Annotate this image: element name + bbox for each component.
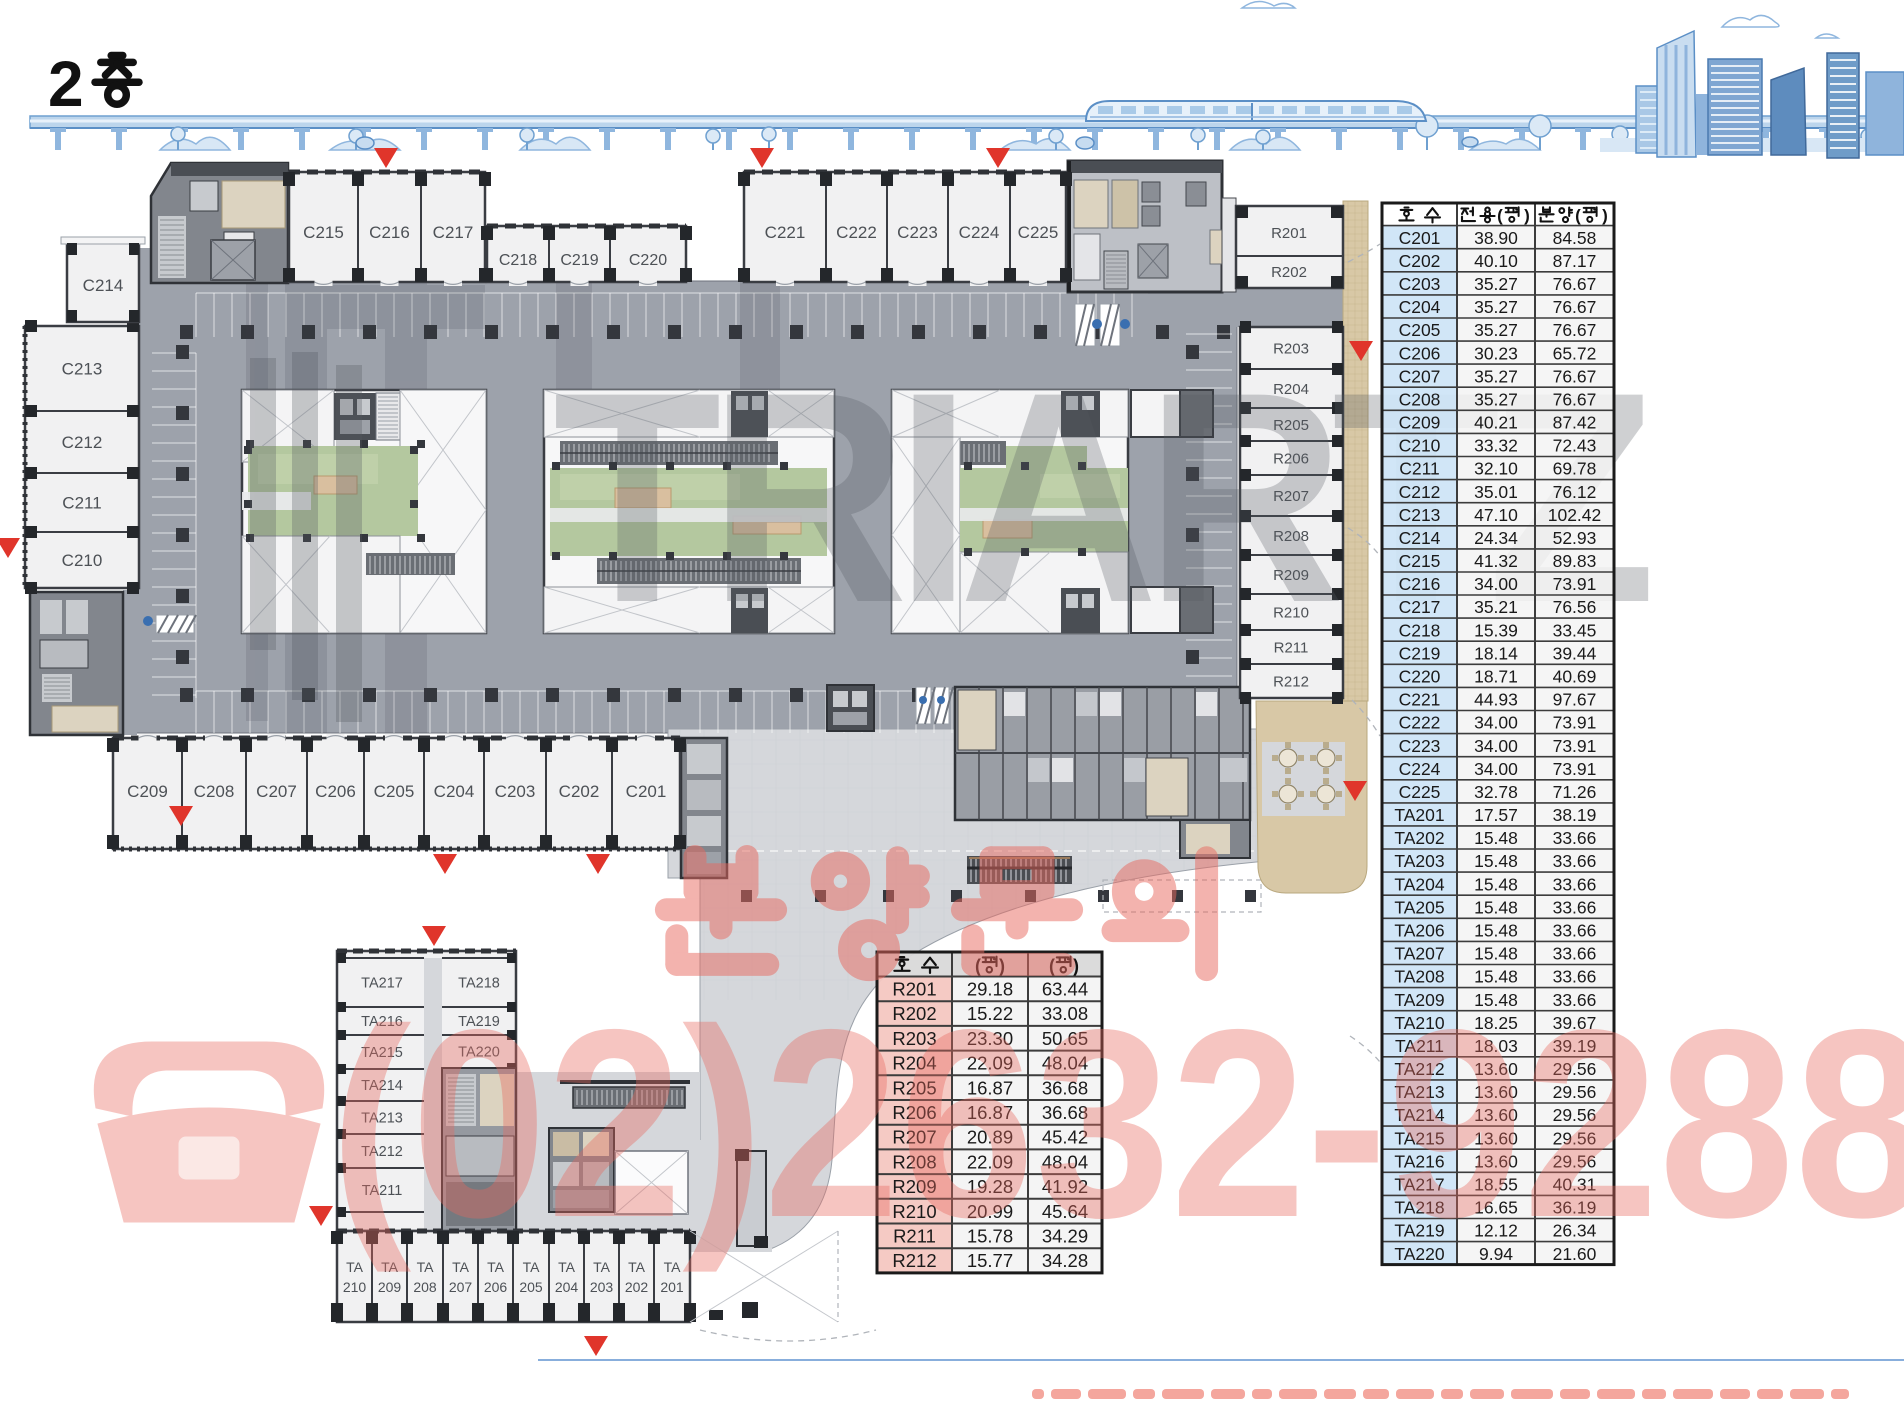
svg-text:30.23: 30.23	[1474, 343, 1518, 363]
svg-text:44.93: 44.93	[1474, 690, 1518, 710]
svg-text:C204: C204	[434, 782, 475, 801]
svg-text:C202: C202	[559, 782, 600, 801]
svg-text:35.27: 35.27	[1474, 366, 1518, 386]
svg-text:35.21: 35.21	[1474, 597, 1518, 617]
svg-text:76.12: 76.12	[1553, 482, 1597, 502]
svg-text:TA204: TA204	[1394, 874, 1445, 894]
svg-text:202: 202	[625, 1279, 649, 1295]
svg-text:C203: C203	[495, 782, 536, 801]
svg-text:34.00: 34.00	[1474, 736, 1518, 756]
svg-text:C213: C213	[1399, 505, 1441, 525]
svg-text:204: 204	[555, 1279, 579, 1295]
svg-text:69.78: 69.78	[1553, 459, 1597, 479]
svg-text:52.93: 52.93	[1553, 528, 1597, 548]
svg-text:38.90: 38.90	[1474, 228, 1518, 248]
svg-text:34.00: 34.00	[1474, 574, 1518, 594]
svg-text:41.32: 41.32	[1474, 551, 1518, 571]
svg-text:C219: C219	[560, 252, 598, 269]
svg-text:89.83: 89.83	[1553, 551, 1597, 571]
svg-text:210: 210	[343, 1279, 367, 1295]
svg-text:(: (	[1575, 206, 1581, 225]
svg-text:C224: C224	[1399, 759, 1441, 779]
svg-text:76.67: 76.67	[1553, 389, 1597, 409]
svg-text:33.66: 33.66	[1553, 828, 1597, 848]
svg-text:102.42: 102.42	[1548, 505, 1602, 525]
svg-text:C222: C222	[1399, 713, 1441, 733]
svg-text:R212: R212	[1273, 674, 1309, 691]
svg-text:(: (	[1497, 206, 1503, 225]
svg-text:C215: C215	[303, 223, 344, 242]
svg-text:76.56: 76.56	[1553, 597, 1597, 617]
svg-text:C215: C215	[1399, 551, 1441, 571]
svg-text:207: 207	[449, 1279, 473, 1295]
svg-text:35.27: 35.27	[1474, 274, 1518, 294]
svg-text:65.72: 65.72	[1553, 343, 1597, 363]
svg-text:32.10: 32.10	[1474, 459, 1518, 479]
svg-text:34.00: 34.00	[1474, 759, 1518, 779]
svg-text:C221: C221	[1399, 690, 1441, 710]
svg-text:73.91: 73.91	[1553, 759, 1597, 779]
svg-text:40.10: 40.10	[1474, 251, 1518, 271]
svg-text:C211: C211	[1399, 459, 1440, 479]
svg-text:203: 203	[590, 1279, 614, 1295]
svg-text:): )	[1524, 206, 1530, 225]
svg-text:C223: C223	[1399, 736, 1441, 756]
svg-text:24.34: 24.34	[1474, 528, 1518, 548]
svg-text:C205: C205	[1399, 320, 1441, 340]
svg-text:C225: C225	[1018, 223, 1059, 242]
svg-text:C219: C219	[1399, 643, 1441, 663]
svg-text:TA206: TA206	[1394, 921, 1444, 941]
svg-text:206: 206	[484, 1279, 508, 1295]
svg-text:33.66: 33.66	[1553, 921, 1597, 941]
svg-text:87.42: 87.42	[1553, 413, 1597, 433]
svg-text:33.66: 33.66	[1553, 944, 1597, 964]
svg-text:C218: C218	[1399, 620, 1441, 640]
svg-text:C216: C216	[1399, 574, 1441, 594]
svg-text:35.27: 35.27	[1474, 389, 1518, 409]
svg-text:C211: C211	[62, 494, 101, 513]
svg-text:33.66: 33.66	[1553, 851, 1597, 871]
svg-text:15.39: 15.39	[1474, 620, 1518, 640]
svg-text:R202: R202	[1271, 264, 1307, 281]
svg-text:C203: C203	[1399, 274, 1441, 294]
svg-text:2: 2	[48, 48, 82, 120]
svg-text:32.78: 32.78	[1474, 782, 1518, 802]
svg-text:C223: C223	[897, 223, 938, 242]
svg-text:C208: C208	[1399, 389, 1441, 409]
svg-text:C224: C224	[959, 223, 1000, 242]
svg-text:C201: C201	[626, 782, 667, 801]
svg-text:TA202: TA202	[1394, 828, 1444, 848]
svg-text:76.67: 76.67	[1553, 366, 1597, 386]
svg-text:35.27: 35.27	[1474, 320, 1518, 340]
svg-text:C222: C222	[836, 223, 877, 242]
svg-text:76.67: 76.67	[1553, 297, 1597, 317]
svg-text:TA203: TA203	[1394, 851, 1444, 871]
svg-text:C210: C210	[62, 551, 103, 570]
svg-text:C214: C214	[1399, 528, 1441, 548]
svg-text:33.66: 33.66	[1553, 897, 1597, 917]
svg-text:C218: C218	[499, 252, 537, 269]
svg-text:18.71: 18.71	[1474, 667, 1518, 687]
svg-text:73.91: 73.91	[1553, 574, 1597, 594]
svg-text:73.91: 73.91	[1553, 713, 1597, 733]
svg-text:15.48: 15.48	[1474, 851, 1518, 871]
svg-text:C205: C205	[374, 782, 415, 801]
svg-text:C214: C214	[83, 276, 124, 295]
svg-text:76.67: 76.67	[1553, 320, 1597, 340]
svg-text:35.01: 35.01	[1474, 482, 1518, 502]
svg-text:C221: C221	[765, 223, 806, 242]
svg-text:201: 201	[660, 1279, 684, 1295]
svg-text:71.26: 71.26	[1553, 782, 1597, 802]
svg-text:C202: C202	[1399, 251, 1441, 271]
svg-text:72.43: 72.43	[1553, 436, 1597, 456]
svg-text:TA207: TA207	[1394, 944, 1444, 964]
svg-text:34.00: 34.00	[1474, 713, 1518, 733]
svg-text:C208: C208	[194, 782, 235, 801]
svg-text:C210: C210	[1399, 436, 1441, 456]
svg-text:208: 208	[413, 1279, 437, 1295]
svg-text:C212: C212	[62, 433, 103, 452]
svg-text:TA205: TA205	[1394, 897, 1444, 917]
svg-text:15.48: 15.48	[1474, 828, 1518, 848]
svg-text:39.44: 39.44	[1553, 643, 1597, 663]
svg-text:C216: C216	[369, 223, 410, 242]
svg-text:C220: C220	[629, 252, 667, 269]
svg-text:76.67: 76.67	[1553, 274, 1597, 294]
svg-text:C207: C207	[256, 782, 297, 801]
svg-text:15.48: 15.48	[1474, 874, 1518, 894]
svg-text:C217: C217	[433, 223, 474, 242]
svg-text:C209: C209	[127, 782, 168, 801]
svg-text:C201: C201	[1399, 228, 1441, 248]
svg-text:C209: C209	[1399, 413, 1441, 433]
svg-text:17.57: 17.57	[1474, 805, 1518, 825]
svg-text:33.45: 33.45	[1553, 620, 1597, 640]
svg-text:C225: C225	[1399, 782, 1441, 802]
svg-text:84.58: 84.58	[1553, 228, 1597, 248]
svg-text:18.14: 18.14	[1474, 643, 1518, 663]
svg-text:209: 209	[378, 1279, 402, 1295]
svg-text:15.48: 15.48	[1474, 897, 1518, 917]
svg-text:33.32: 33.32	[1474, 436, 1518, 456]
svg-text:C217: C217	[1399, 597, 1441, 617]
svg-text:C212: C212	[1399, 482, 1441, 502]
svg-text:40.69: 40.69	[1553, 667, 1597, 687]
svg-text:(02)2632-9288: (02)2632-9288	[330, 973, 1904, 1275]
svg-text:C204: C204	[1399, 297, 1441, 317]
svg-text:35.27: 35.27	[1474, 297, 1518, 317]
svg-text:33.66: 33.66	[1553, 874, 1597, 894]
svg-text:TA201: TA201	[1394, 805, 1444, 825]
svg-text:47.10: 47.10	[1474, 505, 1518, 525]
svg-text:40.21: 40.21	[1474, 413, 1518, 433]
svg-text:15.48: 15.48	[1474, 921, 1518, 941]
svg-text:R201: R201	[1271, 225, 1307, 242]
svg-text:C206: C206	[1399, 343, 1441, 363]
svg-text:C220: C220	[1399, 667, 1441, 687]
svg-text:15.48: 15.48	[1474, 944, 1518, 964]
svg-text:205: 205	[519, 1279, 543, 1295]
svg-text:): )	[1602, 206, 1608, 225]
svg-text:73.91: 73.91	[1553, 736, 1597, 756]
svg-text:87.17: 87.17	[1553, 251, 1597, 271]
svg-text:C206: C206	[315, 782, 356, 801]
svg-text:C207: C207	[1399, 366, 1441, 386]
svg-text:C213: C213	[62, 360, 103, 379]
svg-text:97.67: 97.67	[1553, 690, 1597, 710]
svg-text:38.19: 38.19	[1553, 805, 1597, 825]
